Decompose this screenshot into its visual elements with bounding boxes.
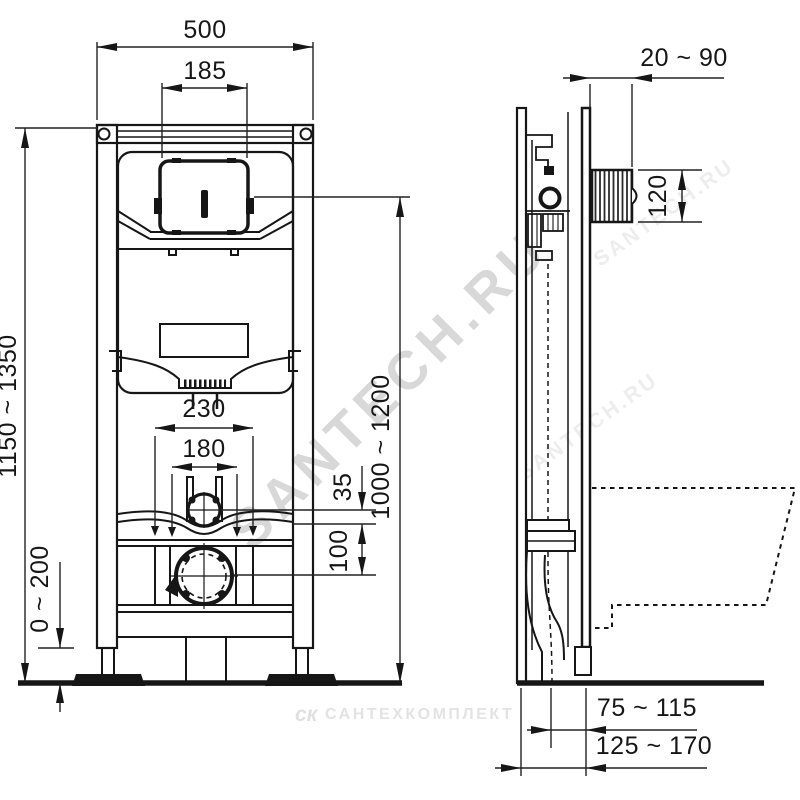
dim-flush-pipe-offset-label: 35: [329, 473, 357, 502]
watermark-layer: SANTECH.RU SANTECH.RU SANTECH.RU ск САНТ…: [218, 154, 739, 726]
dim-outlet-offset-label: 100: [325, 529, 353, 572]
dim-panel-height-label: 1000 ~ 1200: [367, 374, 395, 519]
flush-access-box-side: [592, 170, 637, 222]
dim-leg-adjustment-label: 0 ~ 200: [26, 545, 54, 633]
wall-plate: [575, 108, 591, 675]
drain-band: [118, 540, 293, 681]
mount-hole-right: [301, 129, 312, 140]
technical-drawing-page: SANTECH.RU SANTECH.RU SANTECH.RU ск САНТ…: [0, 0, 800, 800]
dim-outlet-to-wall-label: 75 ~ 115: [597, 694, 697, 722]
dim-frame-height-label: 1150 ~ 1350: [0, 334, 22, 477]
dim-frame-width-label: 500: [183, 16, 226, 44]
foot-right: [296, 648, 308, 676]
flush-pipe-connector: [186, 477, 222, 528]
dim-fixing-inner-label: 180: [182, 435, 225, 463]
front-dimensions: 500 185 1150 ~ 1350 0 ~ 200 230 180 35 1…: [0, 16, 410, 712]
dim-fixing-outer-label: 230: [182, 395, 225, 423]
technical-drawing: SANTECH.RU SANTECH.RU SANTECH.RU ск САНТ…: [0, 0, 800, 800]
fill-valve: [541, 189, 560, 208]
flush-button-slot: [201, 190, 208, 218]
foot-left: [102, 648, 114, 676]
dim-frame-depth-label: 125 ~ 170: [596, 732, 712, 760]
bowl-outline-dashed: [592, 488, 795, 628]
mount-hole-left: [99, 129, 110, 140]
dim-wall-distance-label: 20 ~ 90: [640, 44, 728, 72]
dim-access-box-height-label: 120: [644, 174, 672, 217]
watermark-footer-logo: ск: [295, 703, 319, 726]
watermark-footer-text: САНТЕХКОМПЛЕКТ: [325, 706, 514, 723]
flush-access-panel: [154, 158, 254, 235]
dim-flush-panel-width-label: 185: [183, 57, 226, 85]
